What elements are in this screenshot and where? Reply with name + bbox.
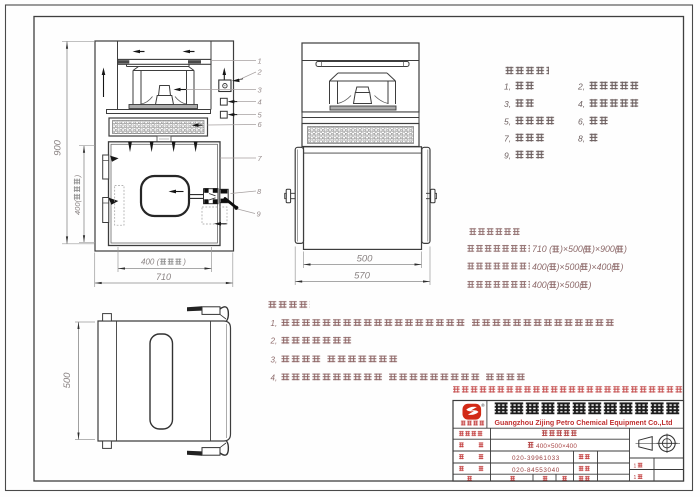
svg-text:Guangzhou Zijing Petro Chemica: Guangzhou Zijing Petro Chemical Equipmen… (495, 418, 673, 427)
svg-text:2,: 2, (577, 81, 585, 91)
svg-text:): ) (588, 280, 592, 290)
svg-text:570: 570 (354, 271, 371, 282)
svg-text:)×900(: )×900( (591, 244, 619, 254)
svg-text:500: 500 (357, 254, 374, 265)
svg-text:1,: 1, (271, 319, 278, 328)
svg-text:1: 1 (634, 475, 637, 481)
svg-text:500: 500 (62, 372, 73, 389)
svg-text:4,: 4, (271, 373, 278, 382)
svg-text:020-39961033: 020-39961033 (512, 455, 560, 462)
svg-text:2,: 2, (270, 337, 278, 346)
svg-text:2: 2 (257, 68, 263, 77)
svg-text:7,: 7, (504, 133, 511, 143)
svg-text:): ) (620, 262, 624, 272)
svg-text:3,: 3, (271, 355, 278, 364)
svg-text:020-84553040: 020-84553040 (512, 467, 560, 474)
svg-text:4,: 4, (578, 99, 585, 109)
svg-text:400 (: 400 ( (141, 258, 161, 267)
svg-text:400×500×400: 400×500×400 (536, 443, 577, 450)
svg-text:900: 900 (53, 139, 64, 156)
svg-text:400(: 400( (532, 280, 551, 290)
svg-text:400(: 400( (73, 198, 82, 215)
svg-text:1: 1 (634, 463, 637, 469)
svg-text:): ) (623, 244, 627, 254)
svg-text:6,: 6, (578, 116, 585, 126)
svg-text:400(: 400( (532, 262, 551, 272)
svg-text:5,: 5, (504, 116, 511, 126)
svg-text:710: 710 (156, 272, 171, 282)
svg-text:9,: 9, (504, 150, 511, 160)
svg-text:1,: 1, (504, 81, 511, 91)
svg-text:1: 1 (258, 57, 262, 66)
svg-text:)×500(: )×500( (559, 244, 587, 254)
svg-text:710 (: 710 ( (532, 244, 553, 254)
svg-text:3,: 3, (504, 99, 511, 109)
svg-text:)×500(: )×500( (556, 262, 584, 272)
svg-text:): ) (73, 174, 82, 178)
svg-text:8,: 8, (578, 133, 585, 143)
svg-text:)×500(: )×500( (556, 280, 584, 290)
svg-text:)×400(: )×400( (588, 262, 616, 272)
svg-text:4: 4 (258, 98, 262, 107)
svg-text:): ) (182, 258, 186, 267)
